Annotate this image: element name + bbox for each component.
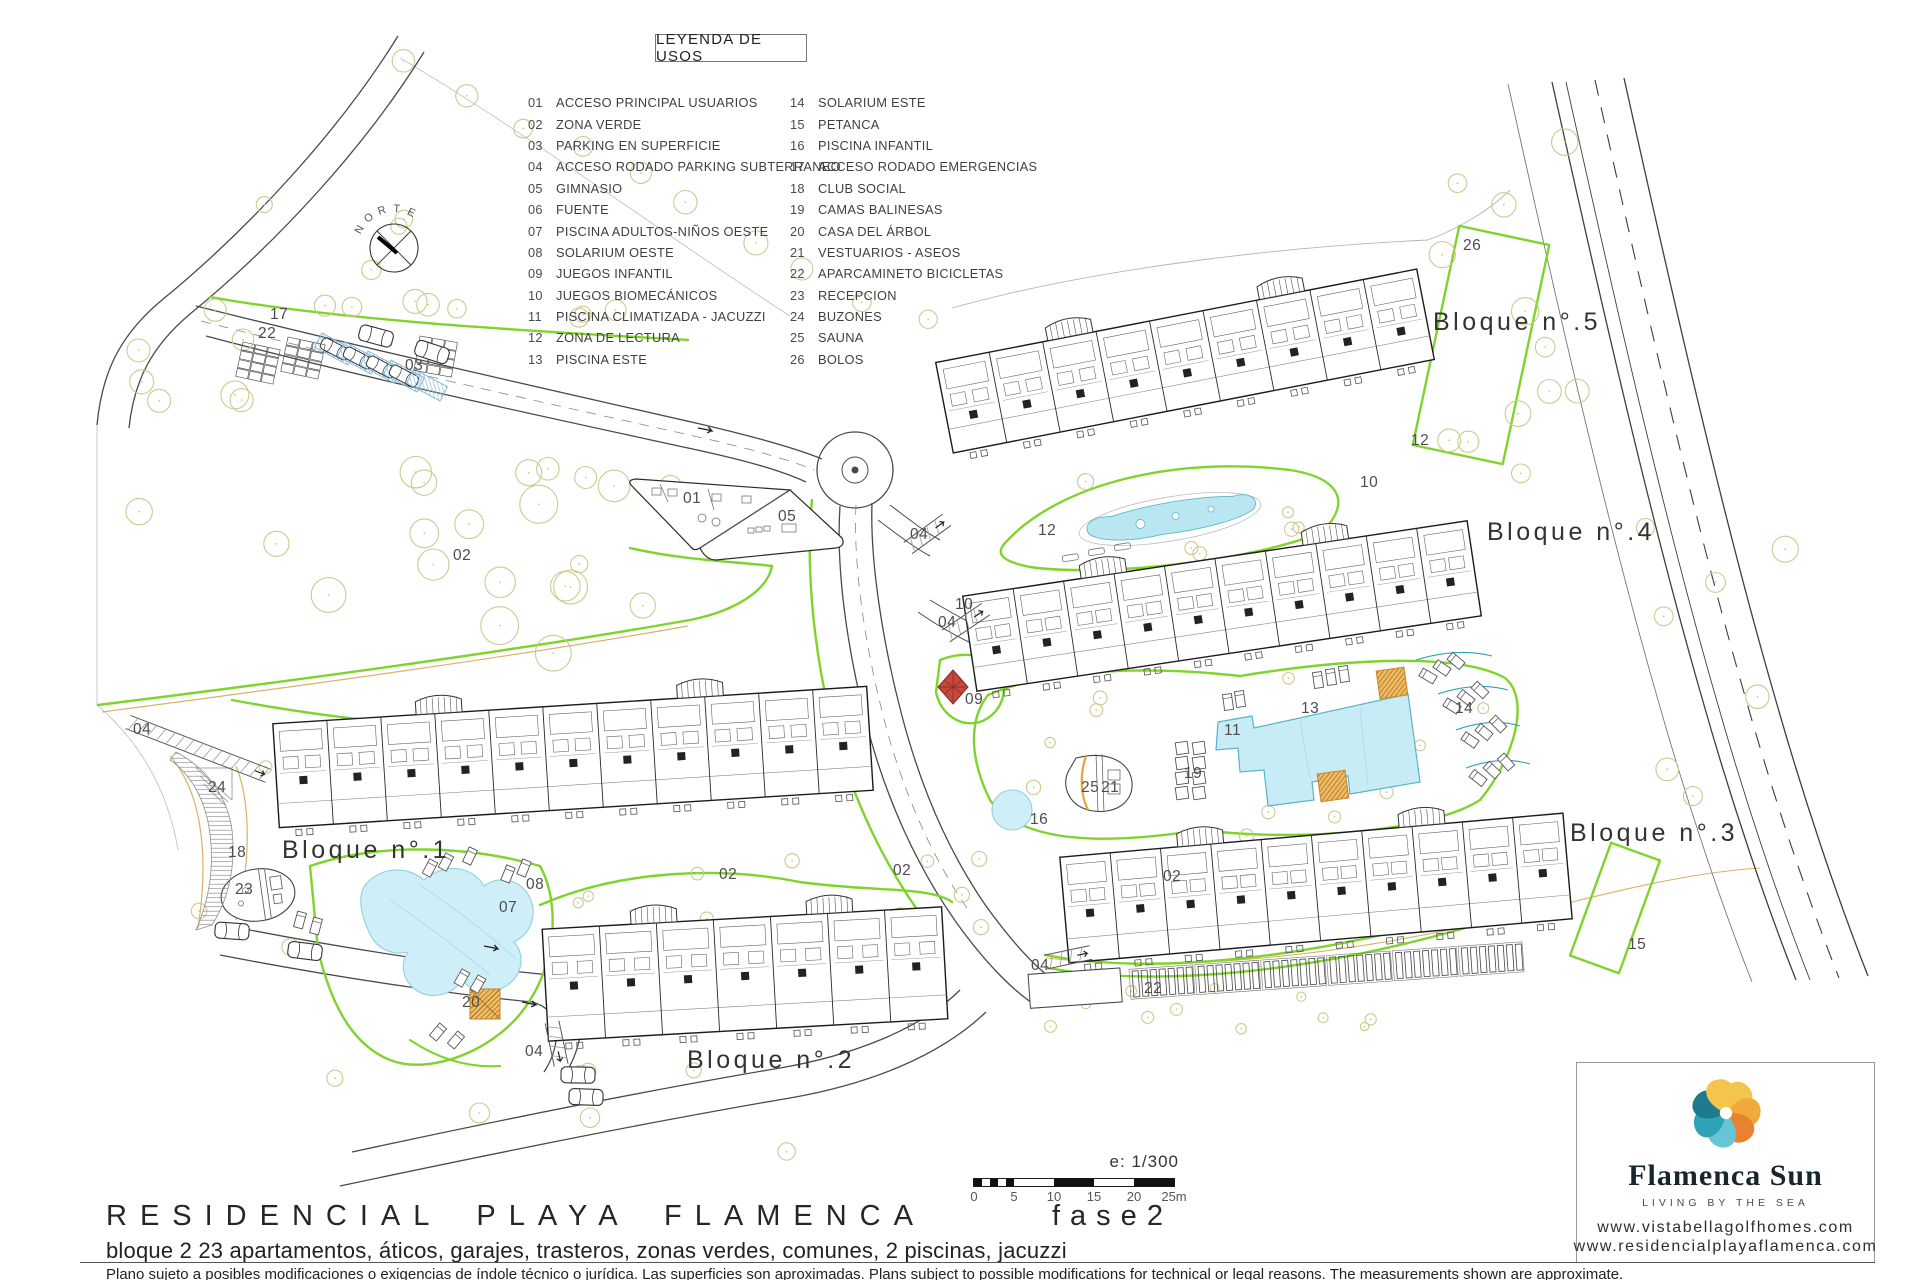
zone-number-label: 01: [683, 490, 701, 507]
brand-name: Flamenca Sun: [1628, 1159, 1823, 1193]
car-icon: [569, 1088, 604, 1105]
zone-number-label: 05: [778, 508, 796, 525]
north-letter: T: [393, 203, 401, 215]
bench: [1114, 542, 1131, 550]
car-icon: [358, 324, 395, 348]
sun-lounger: [1483, 761, 1501, 778]
sun-lounger: [463, 847, 478, 865]
legend-item: 21VESTUARIOS - ASEOS: [790, 242, 1037, 263]
solarium-pergola-2: [1317, 770, 1349, 802]
pool-oeste: [361, 869, 533, 996]
sun-lounger: [1471, 681, 1489, 698]
stairwell: [415, 694, 462, 715]
sun-lounger: [1469, 770, 1487, 787]
building-bloque-1: [272, 668, 874, 836]
bloque-label: Bloque n°.1: [282, 836, 450, 864]
zone-number-label: 22: [258, 325, 276, 342]
stairwell: [1176, 825, 1223, 847]
zone-number-label: 02: [453, 547, 471, 564]
zone-number-label: 10: [1360, 474, 1378, 491]
lazy-river: [1076, 482, 1265, 556]
bloque-label: Bloque n°.3: [1570, 819, 1738, 847]
sun-lounger: [1419, 668, 1437, 684]
zone-number-label: 02: [719, 866, 737, 883]
zone-number-label: 04: [910, 526, 928, 543]
zone-number-label: 23: [235, 881, 253, 898]
playground-marker: [938, 670, 968, 704]
zone-number-label: 19: [1184, 765, 1202, 782]
car-icon: [287, 941, 323, 961]
zone-number-label: 12: [1411, 432, 1429, 449]
footer-divider: [80, 1262, 1875, 1263]
north-letter: E: [405, 206, 417, 220]
sun-lounger: [294, 911, 307, 929]
sun-lounger: [310, 917, 323, 935]
storage-grid: [236, 342, 280, 384]
building-bloque-3: [1058, 795, 1573, 972]
project-details: bloque 2 23 apartamentos, áticos, garaje…: [106, 1238, 1067, 1264]
zone-number-label: 25: [1081, 779, 1099, 796]
legend-item: 25SAUNA: [790, 327, 1037, 348]
sun-lounger: [1234, 690, 1245, 707]
legend-item: 15PETANCA: [790, 113, 1037, 134]
legend-item: 22APARCAMINETO BICICLETAS: [790, 263, 1037, 284]
north-compass: NORTE: [352, 203, 418, 272]
scale-tick: 5: [1010, 1189, 1017, 1204]
zone-number-label: 04: [133, 721, 151, 738]
solarium-pergola-1: [1376, 667, 1408, 699]
building-bloque-2: [541, 889, 948, 1050]
storage-grid: [281, 337, 325, 379]
zone-number-label: 16: [1030, 811, 1048, 828]
balinese-bed: [1192, 786, 1206, 800]
disclaimer-text: Plano sujeto a posibles modificaciones o…: [106, 1266, 1896, 1280]
bloque-label: Bloque n°.5: [1433, 308, 1601, 336]
bloque-label: Bloque n°.2: [687, 1046, 855, 1074]
zone-number-label: 09: [965, 691, 983, 708]
scale-strip: [973, 1178, 1175, 1187]
stairwell: [676, 677, 723, 698]
fountain-icon: [852, 467, 859, 474]
stairwell: [630, 904, 677, 925]
zone-number-label: 15: [1628, 936, 1646, 953]
scale-tick: 0: [970, 1189, 977, 1204]
zone-number-label: 26: [1463, 237, 1481, 254]
zone-number-label: 13: [1301, 700, 1319, 717]
stairwell: [1398, 806, 1445, 828]
bench: [1062, 553, 1079, 561]
north-letter: R: [376, 204, 387, 218]
zone-number-label: 17: [270, 306, 288, 323]
petanca-court: [1570, 843, 1660, 974]
brand-panel: Flamenca Sun LIVING BY THE SEA www.vista…: [1576, 1062, 1875, 1262]
legend-item: 18CLUB SOCIAL: [790, 178, 1037, 199]
bench: [1088, 547, 1105, 555]
pool-infantil: [992, 790, 1032, 830]
zone-number-label: 07: [499, 899, 517, 916]
brand-tagline: LIVING BY THE SEA: [1642, 1197, 1809, 1209]
legend-item: 14SOLARIUM ESTE: [790, 92, 1037, 113]
balinese-bed: [1192, 741, 1206, 755]
zone-number-label: 04: [525, 1043, 543, 1060]
legend-item: 24BUZONES: [790, 306, 1037, 327]
zone-number-label: 22: [1144, 980, 1162, 997]
sun-lounger: [1475, 723, 1493, 740]
zone-number-label: 02: [1163, 868, 1181, 885]
sun-lounger: [1447, 652, 1465, 669]
north-letter: O: [362, 210, 377, 225]
sun-lounger: [1222, 693, 1233, 710]
car-icon: [214, 922, 249, 940]
zone-number-label: 11: [1224, 722, 1241, 739]
bloque-label: Bloque n°.4: [1487, 518, 1655, 546]
zone-number-label: 03: [405, 357, 423, 374]
zone-number-label: 20: [462, 994, 480, 1011]
zone-number-label: 04: [938, 614, 956, 631]
zone-number-label: 24: [208, 779, 226, 796]
zone-number-label: 10: [955, 596, 973, 613]
zone-number-label: 12: [1038, 522, 1056, 539]
sun-lounger: [1461, 732, 1479, 749]
zone-number-label: 21: [1101, 779, 1119, 796]
zone-number-label: 08: [526, 876, 544, 893]
sun-lounger: [1312, 671, 1323, 688]
legend-column-2: 14SOLARIUM ESTE15PETANCA16PISCINA INFANT…: [790, 92, 1037, 370]
sun-lounger: [501, 865, 515, 883]
zone-number-label: 14: [1455, 700, 1473, 717]
zone-number-label: 02: [893, 862, 911, 879]
stairwell: [806, 894, 853, 915]
sun-lounger: [1325, 668, 1336, 685]
car-icon: [561, 1067, 595, 1084]
bolos-court: [1413, 226, 1550, 464]
zone-number-label: 04: [1031, 957, 1049, 974]
zone-number-label: 18: [228, 844, 246, 861]
flamenca-sun-logo-icon: [1682, 1069, 1770, 1157]
legend-item: 17ACCESO RODADO EMERGENCIAS: [790, 156, 1037, 177]
sun-lounger: [1489, 715, 1507, 733]
sun-lounger: [429, 1023, 446, 1041]
project-title: RESIDENCIAL PLAYA FLAMENCA: [106, 1200, 926, 1233]
legend-item: 16PISCINA INFANTIL: [790, 135, 1037, 156]
brand-url-2: www.residencialplayaflamenca.com: [1574, 1237, 1878, 1256]
sun-lounger: [447, 1031, 464, 1049]
balinese-bed: [1175, 786, 1189, 800]
legend-item: 19CAMAS BALINESAS: [790, 199, 1037, 220]
legend-title: LEYENDA DE USOS: [655, 34, 807, 62]
brand-urls: www.vistabellagolfhomes.com www.residenc…: [1574, 1218, 1878, 1256]
brand-url-1: www.vistabellagolfhomes.com: [1574, 1218, 1878, 1237]
scale-ratio-label: e: 1/300: [1110, 1152, 1179, 1172]
sun-lounger: [1338, 665, 1349, 682]
legend-item: 23RECEPCION: [790, 285, 1037, 306]
north-letter: N: [352, 223, 366, 236]
site-plan-sheet: NORTE 1722030105020202020404040404101012…: [0, 0, 1920, 1280]
legend-item: 20CASA DEL ÁRBOL: [790, 220, 1037, 241]
legend-item: 26BOLOS: [790, 349, 1037, 370]
balinese-bed: [1175, 741, 1189, 755]
phase-label: fase2: [1052, 1200, 1173, 1233]
